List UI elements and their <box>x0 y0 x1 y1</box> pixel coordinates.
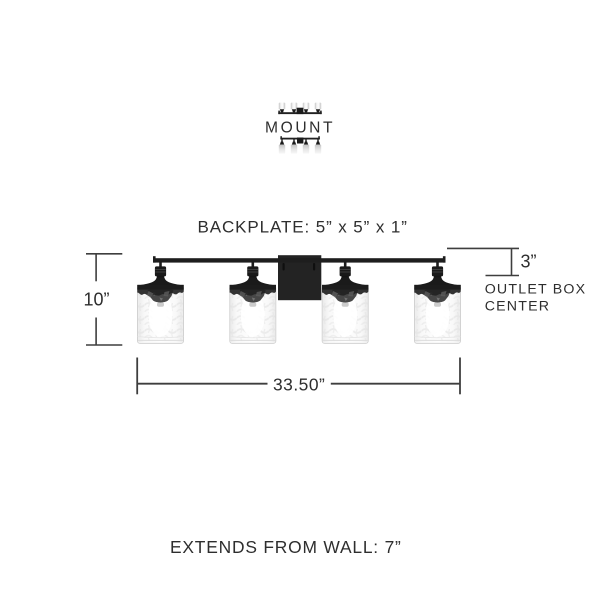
svg-text:CENTER: CENTER <box>485 299 551 315</box>
svg-text:EXTENDS FROM WALL: 7”: EXTENDS FROM WALL: 7” <box>170 537 402 557</box>
svg-text:OUTLET BOX: OUTLET BOX <box>485 282 587 298</box>
svg-text:BACKPLATE: 5” x 5” x 1”: BACKPLATE: 5” x 5” x 1” <box>198 218 408 237</box>
svg-text:3”: 3” <box>521 252 537 272</box>
svg-text:33.50”: 33.50” <box>273 374 325 394</box>
svg-text:10”: 10” <box>84 290 110 310</box>
svg-text:MOUNT: MOUNT <box>265 119 335 136</box>
